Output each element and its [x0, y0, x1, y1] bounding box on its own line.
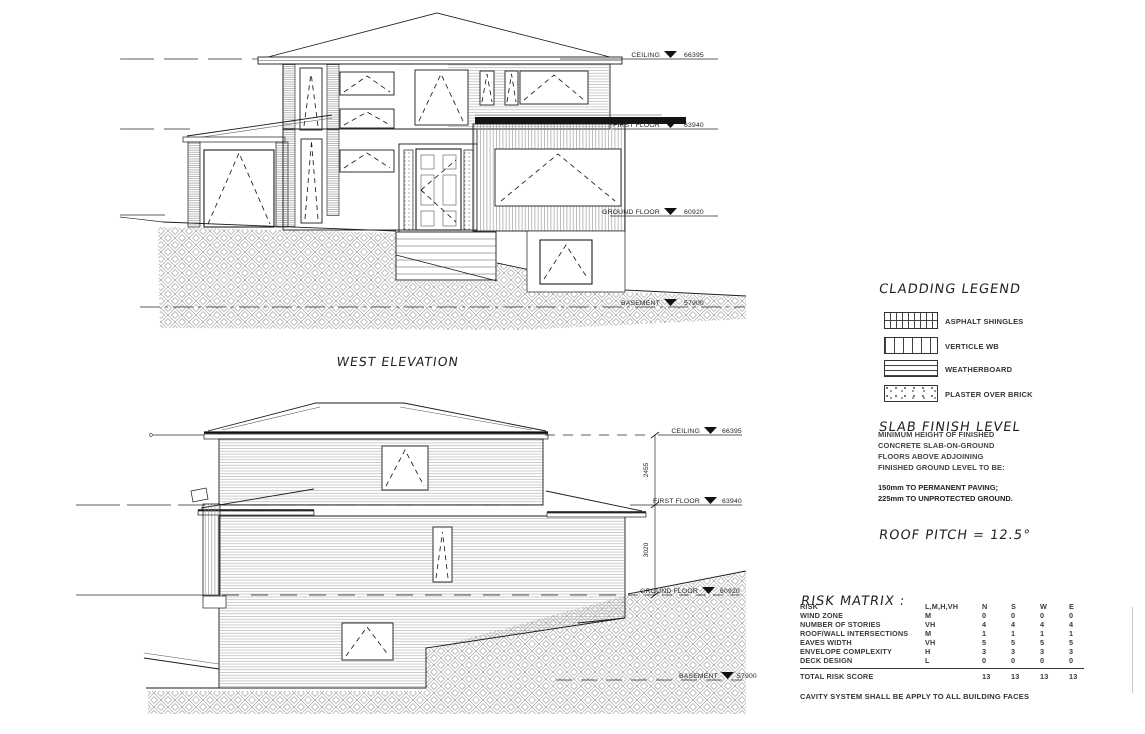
risk-cell: 3 — [1069, 647, 1098, 656]
slab-note-line: FLOORS ABOVE ADJOINING — [878, 451, 1013, 462]
risk-cell: VH — [925, 620, 982, 629]
risk-cell: 3 — [1040, 647, 1069, 656]
level-value: 66395 — [684, 52, 704, 59]
level-label: FIRST FLOOR — [613, 122, 660, 129]
risk-cell: M — [925, 611, 982, 620]
level-value: 60920 — [684, 209, 704, 216]
risk-total-value: 13 — [1040, 672, 1069, 681]
entry-steps — [396, 232, 497, 281]
slab-note-line: FINISHED GROUND LEVEL TO BE: — [878, 462, 1013, 473]
drawing-sheet: CEILING 66395 FIRST FLOOR 63940 GROUND F… — [0, 0, 1145, 734]
level-label: GROUND FLOOR — [640, 588, 698, 595]
risk-cell: 1 — [1069, 629, 1098, 638]
level-triangle-icon — [704, 427, 717, 434]
level-value: 57900 — [737, 673, 757, 680]
risk-cell: 5 — [982, 638, 1011, 647]
risk-cell: 5 — [1011, 638, 1040, 647]
level-triangle-icon — [664, 51, 677, 58]
weatherboard-swatch — [884, 360, 938, 377]
asphalt-shingles-swatch — [884, 312, 938, 329]
risk-cell: 1 — [982, 629, 1011, 638]
sheet-edge-line — [1132, 607, 1133, 693]
level-value: 63940 — [684, 122, 704, 129]
risk-cell: 0 — [1040, 656, 1069, 665]
verticle-wb-swatch — [884, 337, 938, 354]
risk-header-cell: S — [1011, 602, 1040, 611]
level-label: BASEMENT — [679, 673, 718, 680]
risk-cell: VH — [925, 638, 982, 647]
risk-cell: M — [925, 629, 982, 638]
risk-row-label: DECK DESIGN — [800, 656, 925, 665]
level-triangle-icon — [704, 497, 717, 504]
risk-cell: 1 — [1011, 629, 1040, 638]
risk-cell: 3 — [982, 647, 1011, 656]
level-value: 66395 — [722, 428, 742, 435]
risk-total-value: 13 — [982, 672, 1011, 681]
level-triangle-icon — [664, 208, 677, 215]
risk-cell: L — [925, 656, 982, 665]
legend-item-label: PLASTER OVER BRICK — [945, 390, 1033, 399]
risk-cell: 0 — [1011, 656, 1040, 665]
west-elevation-drawing: CEILING 66395 FIRST FLOOR 63940 GROUND F… — [120, 13, 746, 369]
slab-requirement: 150mm TO PERMANENT PAVING; — [878, 482, 1013, 493]
risk-row-label: WIND ZONE — [800, 611, 925, 620]
level-label: CEILING — [671, 428, 700, 435]
risk-cell: 4 — [1011, 620, 1040, 629]
risk-cell: 5 — [1040, 638, 1069, 647]
risk-cell: 0 — [1069, 611, 1098, 620]
risk-cell: 0 — [982, 611, 1011, 620]
level-marker-first-floor: FIRST FLOOR 63940 — [613, 121, 704, 129]
plaster-over-brick-swatch — [884, 385, 938, 402]
risk-matrix-rule — [800, 668, 1084, 669]
risk-cell: 0 — [1011, 611, 1040, 620]
slab-note-line: CONCRETE SLAB-ON-GROUND — [878, 440, 1013, 451]
risk-cell: 3 — [1011, 647, 1040, 656]
risk-cell: 0 — [982, 656, 1011, 665]
risk-matrix-table: RISK L,M,H,VH N S W E WIND ZONE M 0 0 0 … — [800, 602, 1098, 665]
level-label: CEILING — [631, 52, 660, 59]
risk-header-cell: N — [982, 602, 1011, 611]
risk-row-label: ROOF/WALL INTERSECTIONS — [800, 629, 925, 638]
risk-total-label: TOTAL RISK SCORE — [800, 672, 982, 681]
risk-header-cell: L,M,H,VH — [925, 602, 982, 611]
level-marker-ceiling: CEILING 66395 — [671, 427, 742, 435]
level-triangle-icon — [664, 121, 677, 128]
risk-cell: 4 — [982, 620, 1011, 629]
legend-item-label: WEATHERBOARD — [945, 365, 1012, 374]
risk-row-label: NUMBER OF STORIES — [800, 620, 925, 629]
level-value: 60920 — [720, 588, 740, 595]
entry-door — [399, 144, 477, 232]
legend-item-label: ASPHALT SHINGLES — [945, 317, 1023, 326]
level-value: 57900 — [684, 300, 704, 307]
level-marker-first-floor: FIRST FLOOR 63940 — [653, 497, 742, 505]
risk-cell: 5 — [1069, 638, 1098, 647]
cavity-system-note: CAVITY SYSTEM SHALL BE APPLY TO ALL BUIL… — [800, 692, 1098, 701]
risk-total-value: 13 — [1011, 672, 1040, 681]
risk-cell: 4 — [1069, 620, 1098, 629]
side-elevation-drawing: 2455 3020 CEILING 66395 FIRST FLOOR 6394… — [76, 403, 757, 714]
slab-finish-level-note: SLAB FINISH LEVEL MINIMUM HEIGHT OF FINI… — [878, 420, 1013, 504]
slab-requirement: 225mm TO UNPROTECTED GROUND. — [878, 493, 1013, 504]
level-marker-ground-floor: GROUND FLOOR 60920 — [640, 587, 740, 595]
level-marker-ceiling: CEILING 66395 — [631, 51, 704, 59]
dimension-value: 3020 — [643, 542, 650, 557]
risk-header-cell: W — [1040, 602, 1069, 611]
risk-row-label: EAVES WIDTH — [800, 638, 925, 647]
risk-matrix-total-row: TOTAL RISK SCORE 13 13 13 13 — [800, 672, 1098, 681]
slab-finish-level-title: SLAB FINISH LEVEL — [878, 420, 1022, 435]
level-label: GROUND FLOOR — [602, 209, 660, 216]
risk-cell: 0 — [1069, 656, 1098, 665]
risk-cell: 4 — [1040, 620, 1069, 629]
risk-header-cell: E — [1069, 602, 1098, 611]
risk-matrix: RISK MATRIX : RISK L,M,H,VH N S W E WIND… — [800, 594, 1098, 701]
cladding-legend-title: CLADDING LEGEND — [878, 282, 1022, 297]
level-label: FIRST FLOOR — [653, 498, 700, 505]
dimension-value: 2455 — [643, 462, 650, 477]
risk-row-label: ENVELOPE COMPLEXITY — [800, 647, 925, 656]
risk-cell: H — [925, 647, 982, 656]
risk-cell: 1 — [1040, 629, 1069, 638]
risk-total-value: 13 — [1069, 672, 1098, 681]
level-marker-ground-floor: GROUND FLOOR 60920 — [602, 208, 704, 216]
risk-cell: 0 — [1040, 611, 1069, 620]
legend-item-label: VERTICLE WB — [945, 342, 999, 351]
level-marker-basement: BASEMENT 57900 — [679, 672, 757, 680]
west-elevation-title: WEST ELEVATION — [336, 354, 460, 369]
level-label: BASEMENT — [621, 300, 660, 307]
level-value: 63940 — [722, 498, 742, 505]
risk-matrix-title: RISK MATRIX : — [800, 594, 906, 609]
roof-pitch-note: ROOF PITCH = 12.5° — [878, 528, 1032, 543]
